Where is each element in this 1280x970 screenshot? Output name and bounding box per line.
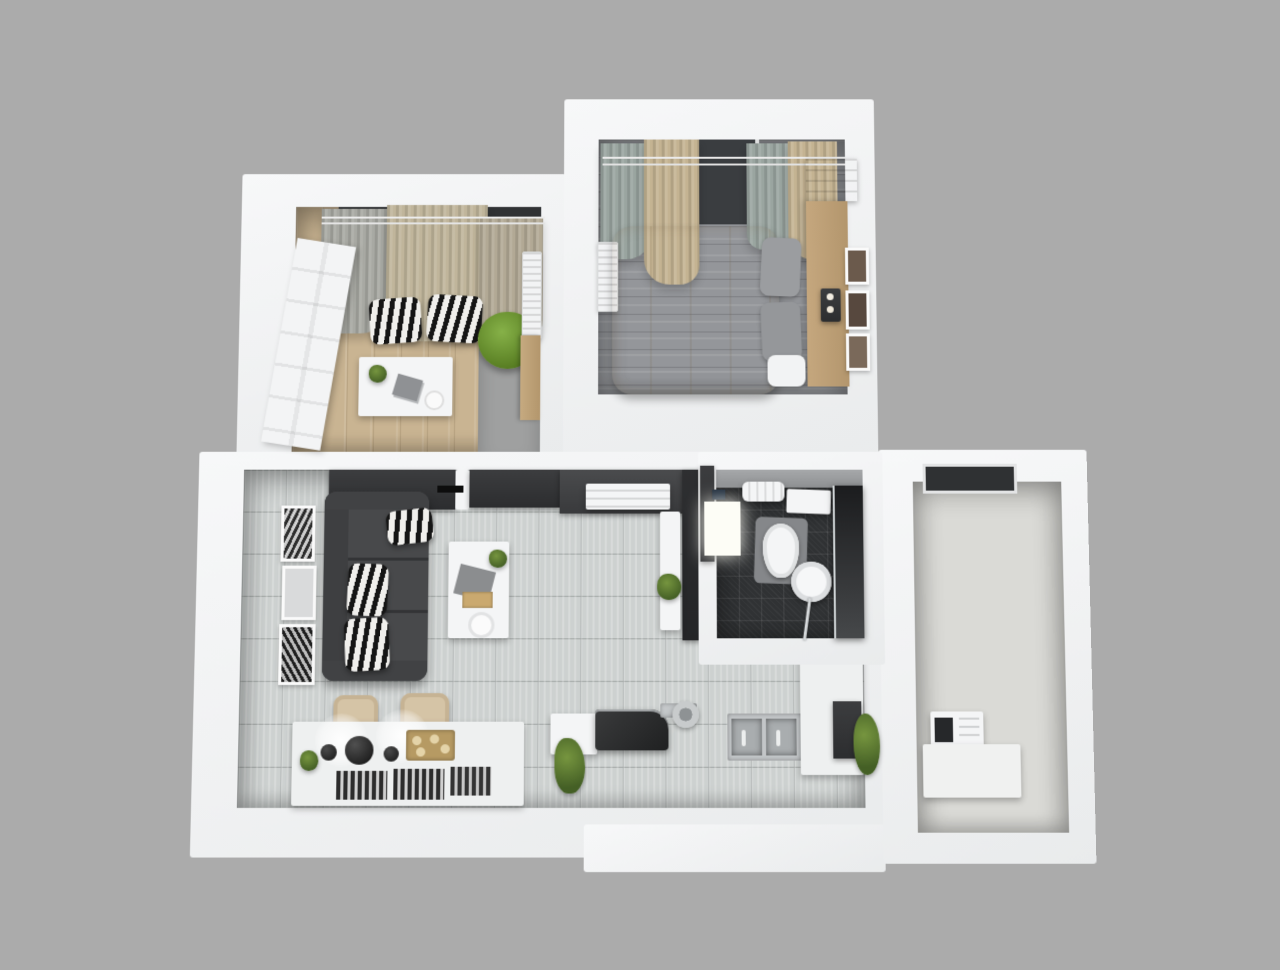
double-sink: [727, 714, 803, 761]
bedroom-bed-duvet: [612, 226, 780, 394]
bedroom-frame-2: [845, 290, 869, 329]
cooktop: [595, 709, 668, 750]
bedroom-nightstand-candles: [821, 288, 841, 321]
study-wardrobe-wood: [520, 335, 540, 420]
sink-basin-left: [731, 719, 762, 756]
sofa-armrest-top: [325, 492, 430, 510]
desk-papers: [392, 374, 423, 402]
bedroom-frame-3: [846, 333, 870, 370]
candle: [827, 293, 834, 300]
sofa-zebra-pillow-3: [344, 617, 390, 672]
bedroom-sheet-fold: [767, 355, 805, 386]
placemat-3: [450, 767, 491, 796]
desk-plate: [424, 390, 444, 410]
towel-shelf: [786, 489, 831, 514]
dining-table: [291, 722, 524, 806]
media-wall-panel-2: [469, 470, 560, 508]
living-frame-1: [280, 506, 315, 562]
washer-lid-line: [959, 718, 979, 720]
coffee-table-plant: [489, 550, 507, 568]
coffee-table: [448, 542, 509, 639]
washer-control-panel: [935, 718, 954, 743]
shower-panel: [833, 486, 865, 639]
washbasin: [791, 562, 832, 602]
bedroom-pillow-1: [760, 237, 802, 297]
towel-radiator: [742, 482, 784, 502]
candle: [827, 306, 834, 313]
air-conditioner: [586, 484, 670, 510]
round-pan: [672, 701, 698, 728]
study-zebra-cushion-2: [426, 294, 484, 344]
balcony-window: [923, 464, 1018, 494]
desk-plant: [369, 365, 387, 383]
gold-tray: [406, 730, 455, 761]
bedroom-shelf-steps: [806, 159, 858, 201]
bathroom-soap-item: [712, 490, 725, 500]
sink-faucet-2: [776, 730, 780, 746]
bedroom-pillow-2: [760, 301, 802, 361]
coffee-table-plate: [468, 612, 494, 638]
tv: [437, 486, 463, 493]
walls-living-bump: [584, 824, 886, 872]
sink-basin-right: [766, 719, 797, 756]
living-frame-3: [278, 624, 316, 685]
sink-faucet-1: [742, 730, 746, 746]
coffee-table-tray: [462, 592, 492, 608]
bedroom-frame-1: [845, 248, 869, 285]
placemat-1: [336, 771, 387, 800]
console-plant: [657, 574, 681, 600]
sofa-cushion-gap: [348, 558, 429, 561]
study-curtain-rod: [322, 217, 545, 219]
placemat-2: [393, 769, 444, 800]
study-radiator: [522, 252, 542, 340]
study-zebra-cushion-1: [368, 297, 422, 345]
sofa-zebra-pillow-1: [385, 507, 435, 546]
study-desk: [358, 357, 453, 416]
floor-plan-render: [0, 14, 1280, 970]
sofa-zebra-pillow-2: [346, 563, 389, 617]
living-frame-2: [281, 566, 316, 620]
balcony-counter: [923, 744, 1022, 797]
black-bowl-large: [345, 736, 374, 765]
floor-plan-screenshot: { "scene": { "type": "3d-apartment-floor…: [0, 0, 1280, 960]
living-console: [660, 512, 680, 631]
bathroom-vanity-glowing: [704, 502, 740, 556]
dining-plant: [300, 750, 319, 771]
